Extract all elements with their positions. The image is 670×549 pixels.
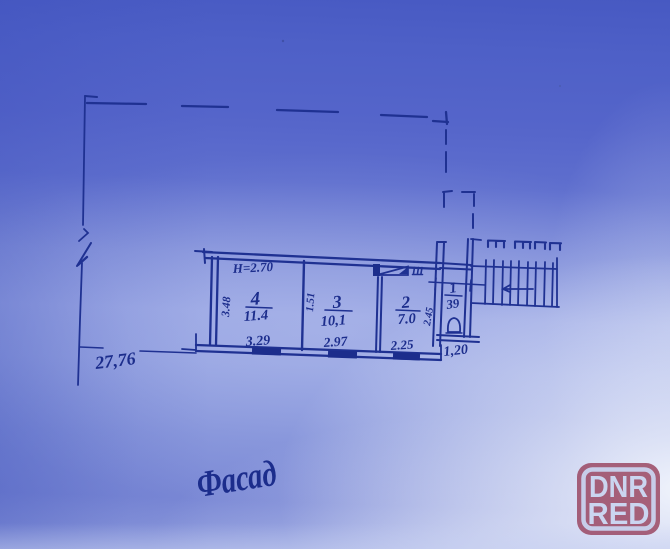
svg-text:7.0: 7.0: [397, 311, 416, 328]
svg-text:1.51: 1.51: [304, 292, 317, 312]
svg-text:3.29: 3.29: [244, 333, 270, 350]
svg-text:2.97: 2.97: [322, 333, 349, 350]
svg-text:Фасад: Фасад: [194, 453, 279, 506]
svg-text:3.48: 3.48: [220, 296, 233, 318]
svg-text:Н=2.70: Н=2.70: [231, 259, 273, 276]
svg-text:1: 1: [448, 280, 458, 297]
svg-text:10,1: 10,1: [320, 312, 346, 330]
svg-text:1,20: 1,20: [443, 342, 469, 359]
svg-text:RED: RED: [588, 496, 650, 531]
svg-text:2.25: 2.25: [389, 336, 414, 353]
svg-text:27,76: 27,76: [93, 348, 137, 373]
svg-text:3: 3: [331, 291, 342, 312]
svg-text:11.4: 11.4: [243, 307, 269, 325]
svg-text:39: 39: [444, 295, 460, 312]
svg-text:2: 2: [400, 292, 411, 312]
